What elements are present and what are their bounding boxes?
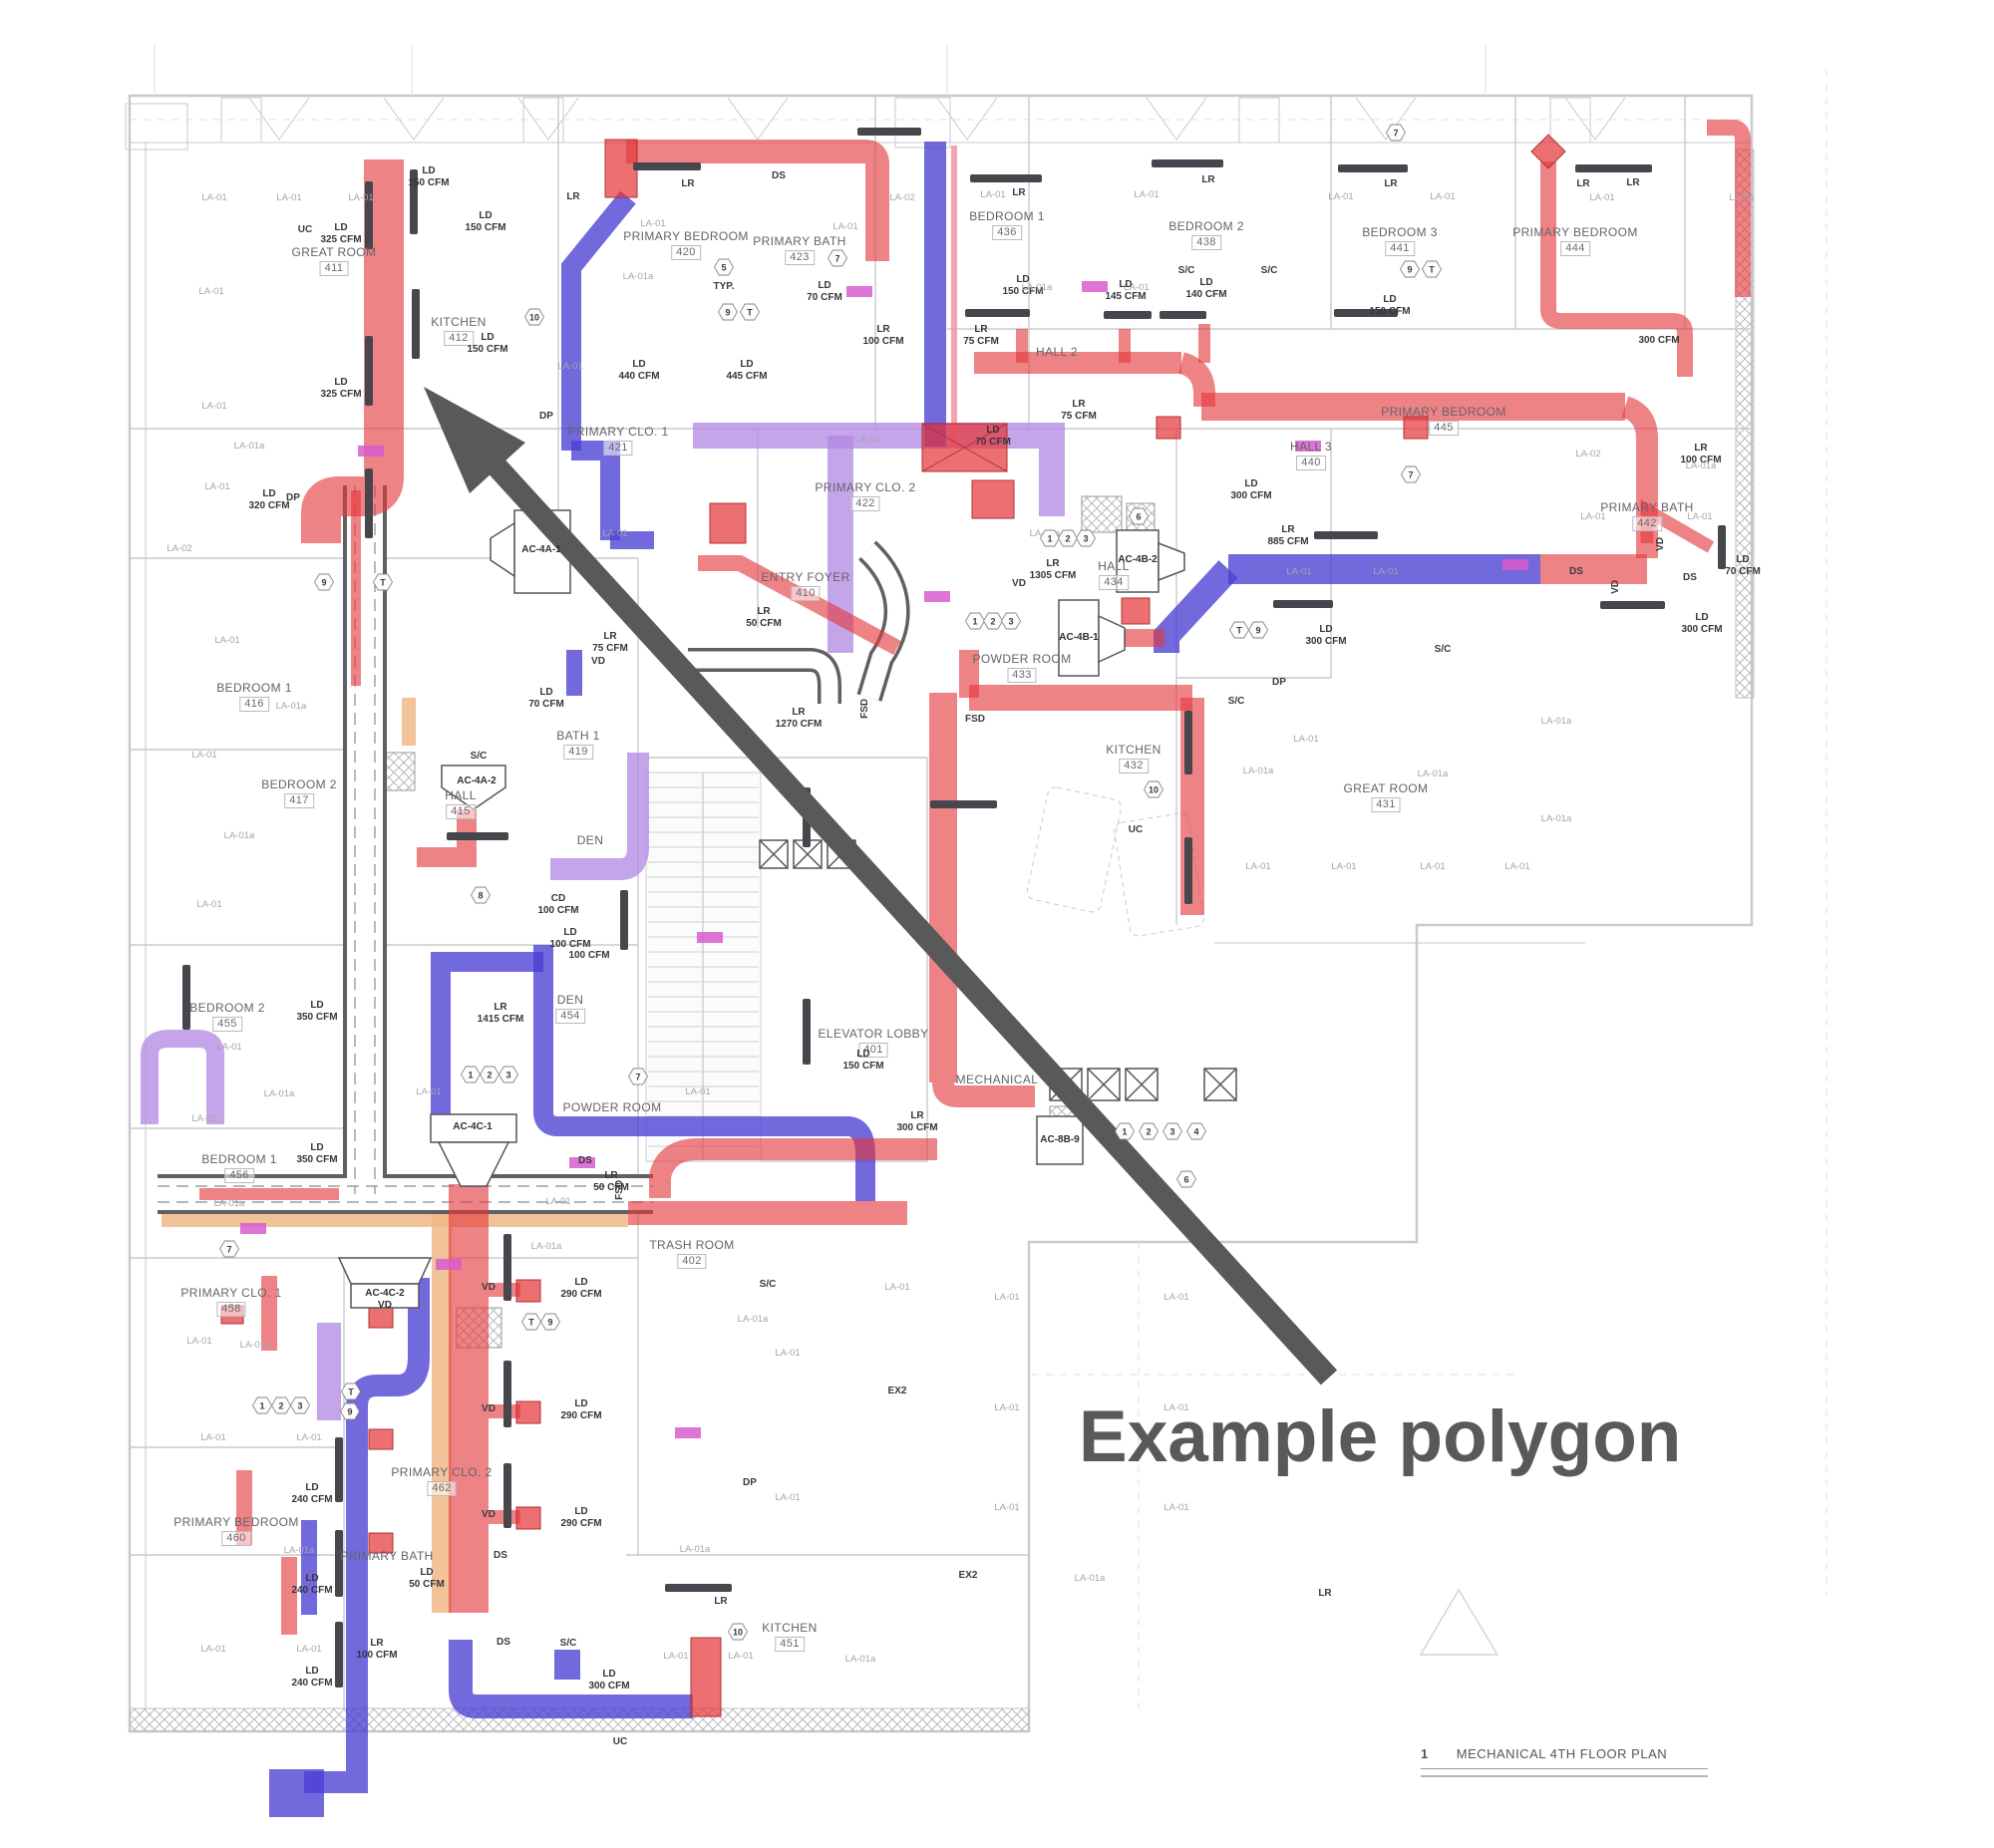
hex-tag: T <box>373 574 393 591</box>
fixture-ref-label: LA-01a <box>845 1654 876 1665</box>
fixture-ref-label: LA-01 <box>1245 861 1270 872</box>
fixture-ref-label: LA-01 <box>832 221 857 232</box>
fixture-ref-label: LA-01a <box>276 701 307 712</box>
duct-cfm-label: LD325 CFM <box>320 222 361 246</box>
fixture-ref-label: LA-01 <box>994 1292 1019 1303</box>
fixture-ref-label: LA-01 <box>1163 1502 1188 1513</box>
hex-tag: 10 <box>1144 781 1163 798</box>
room-label: MECHANICAL <box>956 1073 1039 1086</box>
fixture-ref-label: LA-01a <box>284 1545 315 1556</box>
fixture-ref-label: LA-01 <box>201 192 226 203</box>
device-label: UC <box>1129 824 1143 836</box>
room-label: KITCHEN451 <box>762 1621 817 1652</box>
fixture-ref-label: LA-01 <box>1286 566 1311 577</box>
room-label: HALL 3440 <box>1290 440 1332 470</box>
device-label: UC <box>298 224 312 236</box>
device-label: EX2 <box>959 1570 978 1582</box>
hex-tag: 9 <box>340 1403 360 1420</box>
hex-tag: 9 <box>314 574 334 591</box>
fixture-ref-label: LA-01a <box>680 1544 711 1555</box>
device-label: DS <box>1683 572 1697 584</box>
ac-unit-label: AC-4A-1 <box>521 544 560 556</box>
fixture-ref-label: LA-01 <box>296 1432 321 1443</box>
room-label: BEDROOM 2417 <box>261 777 337 808</box>
fixture-ref-label: LA-01 <box>685 1086 710 1097</box>
fixture-ref-label: LA-01 <box>994 1402 1019 1413</box>
hex-tag: T <box>1229 622 1249 639</box>
duct-cfm-label: LR100 CFM <box>862 324 903 348</box>
hex-tag: T <box>341 1384 361 1400</box>
hex-tag: 2 <box>480 1067 499 1083</box>
fixture-ref-label: LA-01a <box>623 271 654 282</box>
duct-cfm-label: LD325 CFM <box>320 377 361 401</box>
duct-cfm-label: LD240 CFM <box>291 1573 332 1597</box>
room-label: GREAT ROOM411 <box>292 245 377 276</box>
duct-cfm-label: LR1270 CFM <box>776 707 823 731</box>
room-label: PRIMARY BEDROOM420 <box>623 229 749 260</box>
duct-cfm-label: LD70 CFM <box>1725 554 1761 578</box>
device-label: UC <box>613 1736 627 1748</box>
device-label: FSD <box>859 699 871 719</box>
hex-tag: 3 <box>1076 530 1096 547</box>
device-label: LR <box>1201 174 1214 186</box>
room-label: TRASH ROOM402 <box>649 1238 734 1269</box>
room-label: PRIMARY CLO. 1458 <box>180 1286 281 1317</box>
room-label: PRIMARY CLO. 1421 <box>567 425 668 456</box>
room-label: PRIMARY BEDROOM460 <box>173 1515 299 1546</box>
hex-tag: 9 <box>1248 622 1268 639</box>
duct-cfm-label: LD150 CFM <box>842 1049 883 1073</box>
room-label: PRIMARY BATH <box>340 1549 434 1563</box>
fixture-ref-label: LA-01 <box>854 434 879 445</box>
fixture-ref-label: LA-01a <box>224 830 255 841</box>
duct-cfm-label: LD300 CFM <box>588 1669 629 1693</box>
room-label: PRIMARY BATH442 <box>1600 500 1694 531</box>
duct-cfm-label: LD150 CFM <box>1002 274 1043 298</box>
device-label: VD <box>482 1282 496 1294</box>
hex-tag: 3 <box>290 1397 310 1414</box>
room-label: BEDROOM 2455 <box>189 1001 265 1032</box>
device-label: DP <box>743 1477 757 1489</box>
fixture-ref-label: LA-02 <box>1575 449 1600 460</box>
room-label: POWDER ROOM <box>562 1100 661 1114</box>
fixture-ref-label: LA-01a <box>240 1340 271 1351</box>
fixture-ref-label: LA-01 <box>663 1651 688 1662</box>
fixture-ref-label: LA-01a <box>1541 716 1572 727</box>
device-label: VD <box>1012 578 1026 590</box>
fixture-ref-label: LA-01 <box>204 481 229 492</box>
hex-tag: 7 <box>828 250 847 267</box>
hex-tag: 9 <box>718 304 738 321</box>
fixture-ref-label: LA-01 <box>1328 191 1353 202</box>
device-label: DS <box>494 1550 507 1562</box>
device-label: EX2 <box>888 1386 907 1397</box>
duct-cfm-label: LD150 CFM <box>408 165 449 189</box>
room-label: KITCHEN432 <box>1106 743 1161 773</box>
ac-unit-label: AC-8B-9 <box>1040 1134 1079 1146</box>
fixture-ref-label: LA-01a <box>531 1241 562 1252</box>
device-label: LR <box>714 1596 727 1608</box>
duct-cfm-label: LD240 CFM <box>291 1482 332 1506</box>
fixture-ref-label: LA-01 <box>1687 511 1712 522</box>
duct-cfm-label: LD100 CFM <box>549 927 590 951</box>
fixture-ref-label: LA-01 <box>1420 861 1445 872</box>
hex-tag: 3 <box>498 1067 518 1083</box>
drawing-number: 1 <box>1421 1746 1429 1761</box>
duct-cfm-label: LD140 CFM <box>1185 277 1226 301</box>
hex-tag: T <box>1422 261 1442 278</box>
hex-tag: 1 <box>965 613 985 630</box>
hex-tag: 10 <box>524 309 544 326</box>
hex-tag: 8 <box>471 887 491 904</box>
room-label: DEN <box>577 833 604 847</box>
fixture-ref-label: LA-01 <box>214 635 239 646</box>
ac-unit-label: AC-4A-2 <box>457 775 496 787</box>
hex-tag: T <box>521 1314 541 1331</box>
duct-cfm-label: LD350 CFM <box>296 1000 337 1024</box>
duct-cfm-label: LR50 CFM <box>593 1170 629 1194</box>
fixture-ref-label: LA-01a <box>1243 766 1274 776</box>
fixture-ref-label: LA-01 <box>1729 192 1754 203</box>
room-label: BEDROOM 3441 <box>1362 225 1438 256</box>
room-label: PRIMARY CLO. 2422 <box>815 480 915 511</box>
fixture-ref-label: LA-01 <box>196 899 221 910</box>
mechanical-floor-plan: GREAT ROOM411KITCHEN412PRIMARY BEDROOM42… <box>0 0 1994 1848</box>
duct-cfm-label: LD300 CFM <box>1305 624 1346 648</box>
hex-tag: 7 <box>1401 466 1421 483</box>
duct-cfm-label: LD70 CFM <box>807 280 842 304</box>
device-label: DP <box>1272 677 1286 689</box>
room-label: ENTRY FOYER410 <box>761 570 849 601</box>
drawing-title: 1MECHANICAL 4TH FLOOR PLAN <box>1421 1746 1667 1761</box>
duct-cfm-label: LD70 CFM <box>975 425 1011 449</box>
duct-cfm-label: LD320 CFM <box>248 488 289 512</box>
ac-unit-label: AC-4B-1 <box>1059 632 1098 644</box>
fixture-ref-label: LA-01 <box>186 1336 211 1347</box>
fixture-ref-label: LA-01a <box>1541 813 1572 824</box>
room-label: BEDROOM 1416 <box>216 681 292 712</box>
hex-tag: 3 <box>1001 613 1021 630</box>
fixture-ref-label: LA-01a <box>234 441 265 452</box>
device-label: LR <box>566 191 579 203</box>
duct-cfm-label: LD290 CFM <box>560 1506 601 1530</box>
hex-tag: 1 <box>1040 530 1060 547</box>
duct-cfm-label: LD50 CFM <box>409 1567 445 1591</box>
hex-tag: 6 <box>1176 1171 1196 1188</box>
room-label: PRIMARY BEDROOM444 <box>1512 225 1638 256</box>
fixture-ref-label: LA-01 <box>191 1113 216 1124</box>
duct-cfm-label: LR50 CFM <box>746 606 782 630</box>
hex-tag: 5 <box>714 259 734 276</box>
fixture-ref-label: LA-01a <box>264 1088 295 1099</box>
fixture-ref-label: LA-01a <box>1075 1573 1106 1584</box>
fixture-ref-label: LA-01 <box>994 1502 1019 1513</box>
duct-cfm-label: LD240 CFM <box>291 1666 332 1690</box>
fixture-ref-label: LA-01a <box>738 1314 769 1325</box>
fixture-ref-label: LA-01 <box>775 1492 800 1503</box>
duct-cfm-label: LD150 CFM <box>1369 294 1410 318</box>
device-label: S/C <box>1261 265 1278 277</box>
duct-cfm-label: LD445 CFM <box>726 359 767 383</box>
room-label: BEDROOM 1456 <box>201 1152 277 1183</box>
fixture-ref-label: LA-01 <box>640 218 665 229</box>
title-rule <box>1421 1768 1708 1769</box>
duct-cfm-label: LD300 CFM <box>1230 478 1271 502</box>
device-label: LR <box>1576 178 1589 190</box>
drawing-title-text: MECHANICAL 4TH FLOOR PLAN <box>1457 1746 1667 1761</box>
fixture-ref-label: LA-01 <box>276 192 301 203</box>
device-label: LR <box>681 178 694 190</box>
fixture-ref-label: LA-01 <box>884 1282 909 1293</box>
device-label: DS <box>497 1637 510 1649</box>
device-label: TYP. <box>714 281 735 293</box>
device-label: S/C <box>560 1638 577 1650</box>
hex-tag: 2 <box>1058 530 1078 547</box>
fixture-ref-label: LA-01 <box>1293 734 1318 745</box>
fixture-ref-label: LA-01 <box>1373 566 1398 577</box>
device-label: S/C <box>1178 265 1195 277</box>
fixture-ref-label: LA-01a <box>214 1198 245 1209</box>
duct-cfm-label: LD290 CFM <box>560 1277 601 1301</box>
hex-tag: 2 <box>983 613 1003 630</box>
duct-cfm-label: LD150 CFM <box>467 332 507 356</box>
device-label: DP <box>286 492 300 504</box>
room-label: BEDROOM 1436 <box>969 209 1045 240</box>
fixture-ref-label: LA-01 <box>1163 1292 1188 1303</box>
annotation-text: Example polygon <box>1079 1395 1681 1478</box>
room-label: ELEVATOR LOBBY401 <box>819 1027 929 1058</box>
hex-tag: 9 <box>540 1314 560 1331</box>
device-label: DS <box>578 1155 592 1167</box>
device-label: LR <box>1318 1588 1331 1600</box>
duct-cfm-label: LR75 CFM <box>592 631 628 655</box>
duct-cfm-label: LR885 CFM <box>1267 524 1308 548</box>
hex-tag: T <box>740 304 760 321</box>
plan-labels: GREAT ROOM411KITCHEN412PRIMARY BEDROOM42… <box>0 0 1994 1848</box>
device-label: S/C <box>760 1279 777 1291</box>
fixture-ref-label: LA-01 <box>348 192 373 203</box>
ac-unit-label: AC-4C-1 <box>453 1121 492 1133</box>
duct-cfm-label: LR100 CFM <box>1680 443 1721 466</box>
hex-tag: 6 <box>1129 508 1149 525</box>
room-label: PRIMARY BEDROOM445 <box>1381 405 1506 436</box>
room-label: BATH 1419 <box>556 729 600 760</box>
hex-tag: 2 <box>1139 1123 1159 1140</box>
duct-cfm-label: 300 CFM <box>1638 335 1679 347</box>
fixture-ref-label: LA-02 <box>166 543 191 554</box>
fixture-ref-label: LA-01 <box>728 1651 753 1662</box>
device-label: S/C <box>1435 644 1452 656</box>
hex-tag: 7 <box>219 1241 239 1258</box>
fixture-ref-label: LA-01 <box>557 361 582 372</box>
fixture-ref-label: LA-01 <box>296 1644 321 1655</box>
fixture-ref-label: LA-01 <box>416 1086 441 1097</box>
device-label: DS <box>772 170 786 182</box>
duct-cfm-label: LD300 CFM <box>1681 612 1722 636</box>
fixture-ref-label: LA-01a <box>1686 461 1717 471</box>
hex-tag: 9 <box>1400 261 1420 278</box>
device-label: S/C <box>1228 696 1245 708</box>
duct-cfm-label: LD350 CFM <box>296 1142 337 1166</box>
duct-cfm-label: LD145 CFM <box>1105 279 1146 303</box>
duct-cfm-label: LD440 CFM <box>618 359 659 383</box>
device-label: LR <box>1012 187 1025 199</box>
hex-tag: 7 <box>628 1069 648 1085</box>
fixture-ref-label: LA-01 <box>775 1348 800 1359</box>
room-label: HALL 2 <box>1036 345 1078 359</box>
duct-cfm-label: LR300 CFM <box>896 1110 937 1134</box>
duct-cfm-label: LR75 CFM <box>963 324 999 348</box>
hex-tag: 1 <box>252 1397 272 1414</box>
fixture-ref-label: LA-02 <box>889 192 914 203</box>
fixture-ref-label: LA-01 <box>1124 282 1149 293</box>
ac-unit-label: AC-4B-2 <box>1118 554 1157 566</box>
fixture-ref-label: LA-01 <box>545 1196 570 1207</box>
hex-tag: 4 <box>1186 1123 1206 1140</box>
device-label: FSD <box>614 1180 626 1200</box>
room-label: KITCHEN412 <box>431 315 486 346</box>
fixture-ref-label: LA-01 <box>200 1432 225 1443</box>
room-label: DEN454 <box>555 993 585 1024</box>
fixture-ref-label: LA-01 <box>191 750 216 761</box>
ac-unit-label: AC-4C-2VD <box>365 1288 404 1312</box>
room-label: BEDROOM 2438 <box>1168 219 1244 250</box>
hex-tag: 10 <box>728 1624 748 1641</box>
fixture-ref-label: LA-01 <box>201 401 226 412</box>
fixture-ref-label: LA-01 <box>200 1644 225 1655</box>
device-label: DP <box>539 411 553 423</box>
duct-cfm-label: LD70 CFM <box>528 687 564 711</box>
hex-tag: 7 <box>1386 125 1406 142</box>
fixture-ref-label: LA-01a <box>1418 769 1449 779</box>
fixture-ref-label: LA-01 <box>1430 191 1455 202</box>
fixture-ref-label: LA-01 <box>602 528 627 539</box>
room-label: HALL415 <box>445 788 477 819</box>
room-label: PRIMARY CLO. 2462 <box>391 1465 492 1496</box>
fixture-ref-label: LA-01 <box>1580 511 1605 522</box>
fixture-ref-label: LA-01a <box>1022 282 1053 293</box>
room-label: POWDER ROOM433 <box>972 652 1071 683</box>
duct-cfm-label: LD290 CFM <box>560 1398 601 1422</box>
duct-cfm-label: LR100 CFM <box>356 1638 397 1662</box>
duct-cfm-label: LR1305 CFM <box>1030 558 1077 582</box>
device-label: VD <box>591 656 605 668</box>
hex-tag: 1 <box>461 1067 481 1083</box>
fixture-ref-label: LA-01 <box>1134 189 1159 200</box>
device-label: VD <box>482 1403 496 1415</box>
fixture-ref-label: LA-01 <box>216 1042 241 1053</box>
device-label: FSD <box>965 714 985 726</box>
duct-cfm-label: 100 CFM <box>568 950 609 962</box>
duct-cfm-label: LR75 CFM <box>1061 399 1097 423</box>
hex-tag: 1 <box>1115 1123 1135 1140</box>
duct-cfm-label: LD150 CFM <box>465 210 505 234</box>
device-label: S/C <box>471 751 488 763</box>
device-label: DS <box>1569 566 1583 578</box>
device-label: VD <box>482 1509 496 1521</box>
hex-tag: 2 <box>271 1397 291 1414</box>
fixture-ref-label: LA-01 <box>198 286 223 297</box>
fixture-ref-label: LA-01 <box>1589 192 1614 203</box>
room-label: GREAT ROOM431 <box>1344 781 1429 812</box>
device-label: LR <box>1384 178 1397 190</box>
device-label: VD <box>1610 580 1622 594</box>
fixture-ref-label: LA-01 <box>1331 861 1356 872</box>
duct-cfm-label: CD100 CFM <box>537 893 578 917</box>
hex-tag: 3 <box>1163 1123 1182 1140</box>
fixture-ref-label: LA-01 <box>980 189 1005 200</box>
fixture-ref-label: LA-01 <box>1504 861 1529 872</box>
duct-cfm-label: LR1415 CFM <box>478 1002 524 1026</box>
room-label: HALL434 <box>1098 559 1130 590</box>
device-label: VD <box>1655 537 1667 551</box>
device-label: LR <box>1626 177 1639 189</box>
